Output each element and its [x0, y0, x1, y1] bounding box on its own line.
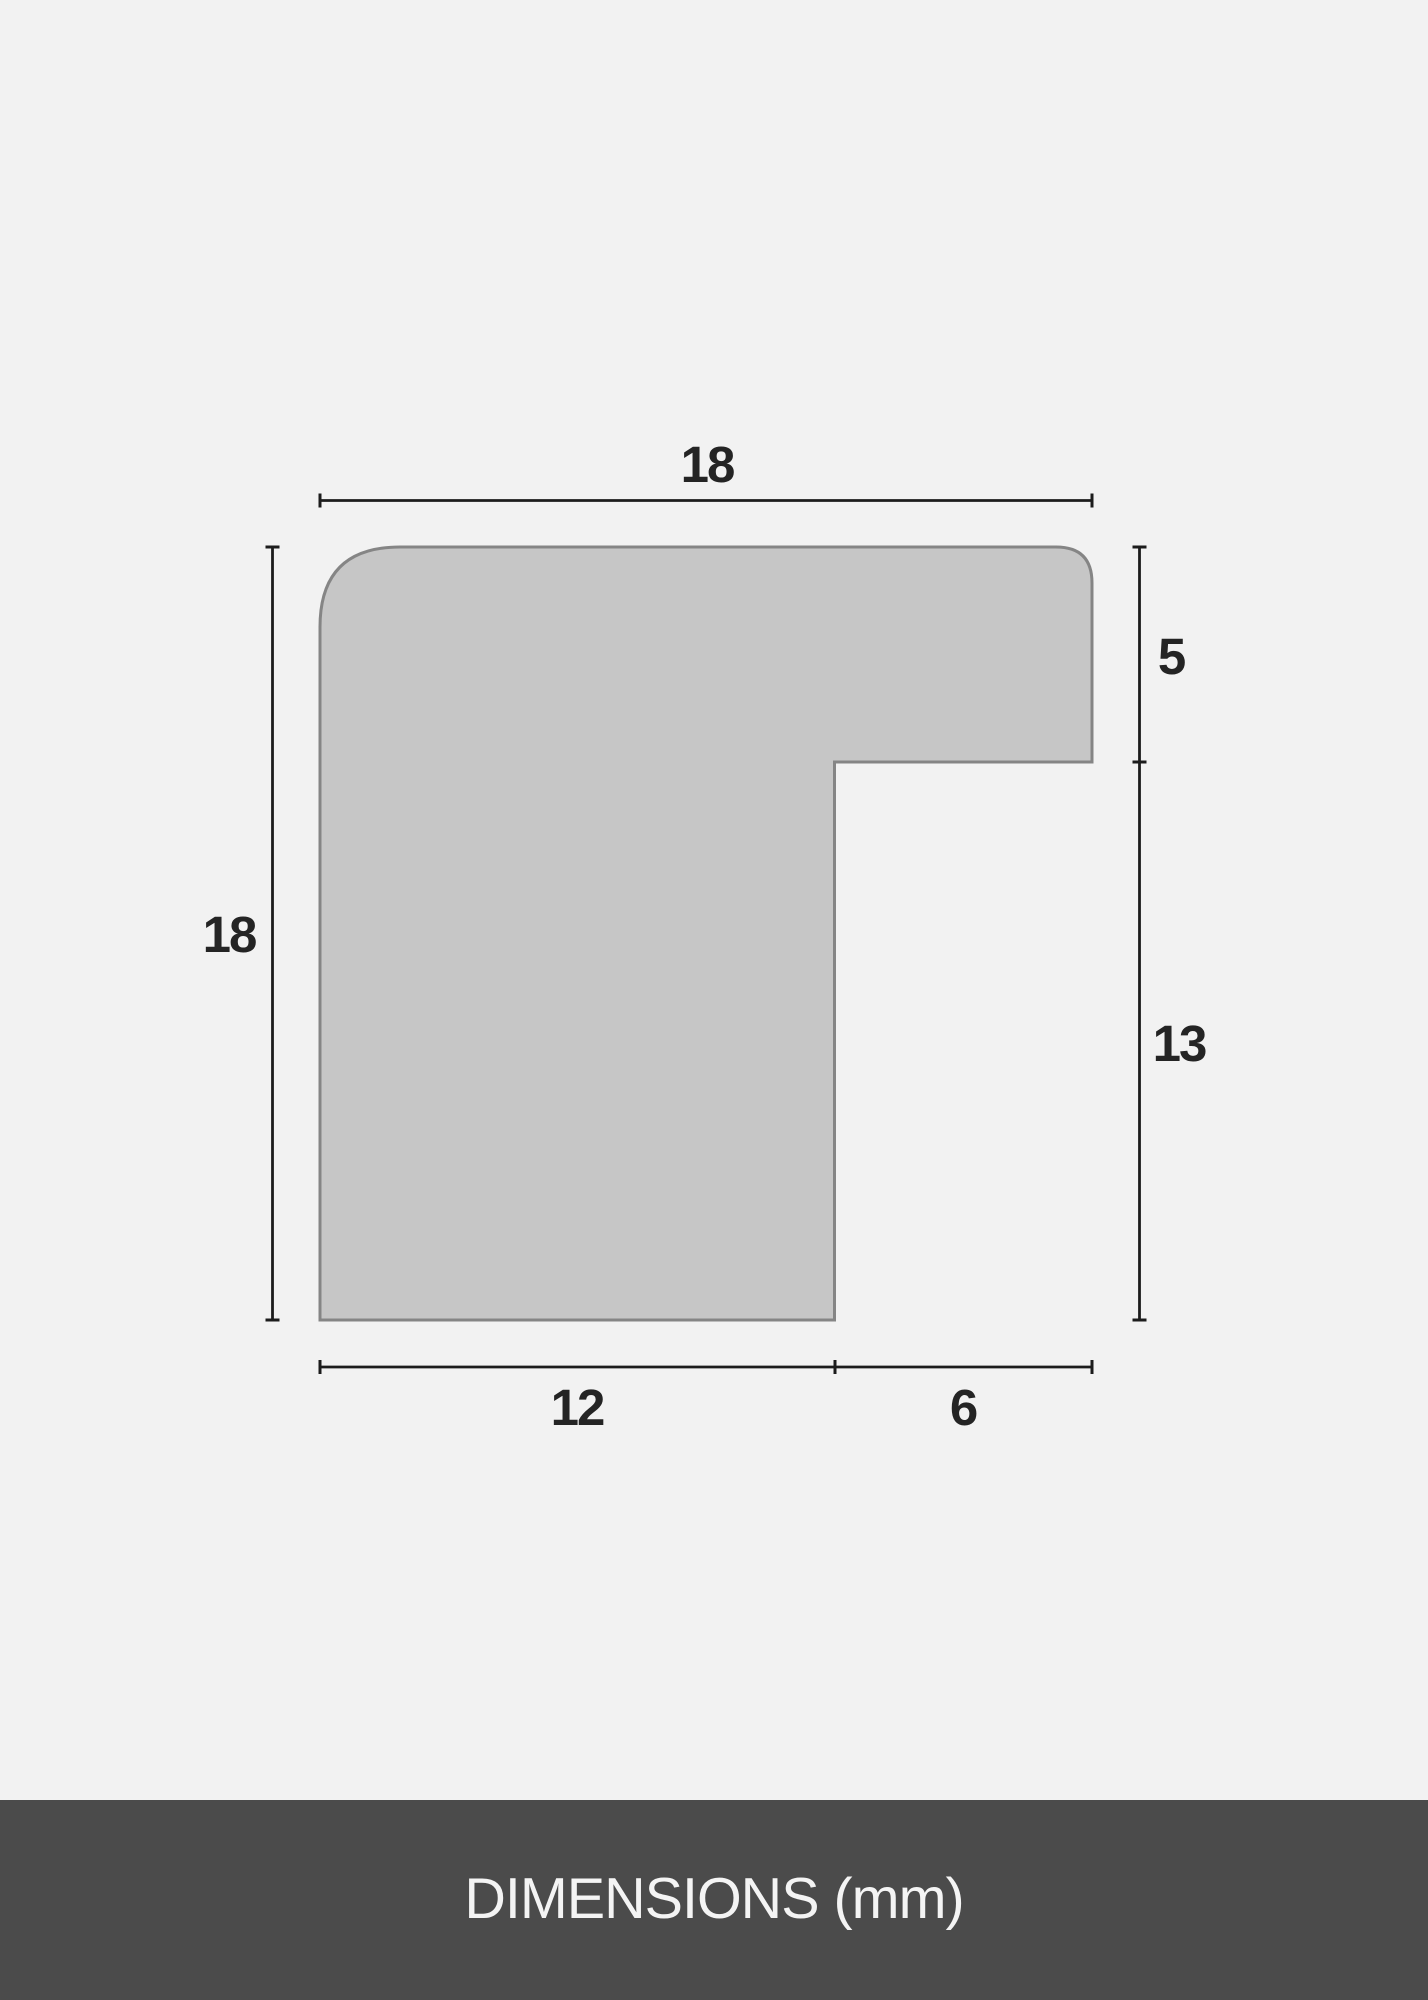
svg-text:18: 18 — [203, 906, 256, 963]
svg-text:18: 18 — [681, 436, 734, 493]
svg-text:6: 6 — [950, 1379, 978, 1436]
svg-text:13: 13 — [1153, 1015, 1206, 1072]
svg-text:5: 5 — [1158, 628, 1186, 685]
svg-text:DIMENSIONS (mm): DIMENSIONS (mm) — [464, 1867, 963, 1931]
svg-text:12: 12 — [551, 1379, 604, 1436]
